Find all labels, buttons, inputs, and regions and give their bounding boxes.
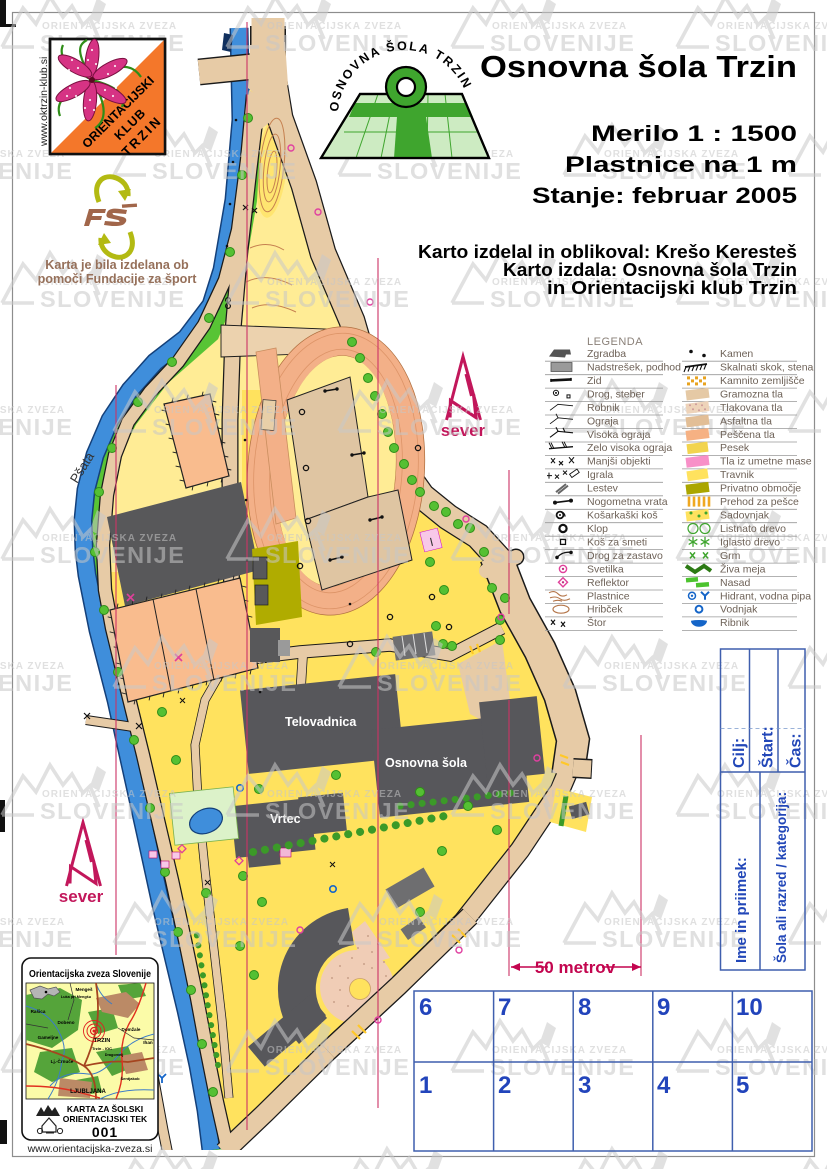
svg-text:Peščena tla: Peščena tla <box>720 429 775 441</box>
svg-text:Ihan: Ihan <box>143 1040 153 1045</box>
svg-text:Orientacijska zveza Slovenije: Orientacijska zveza Slovenije <box>29 968 151 980</box>
svg-text:Skalnati skok, stena: Skalnati skok, stena <box>720 362 814 374</box>
svg-text:www.orientacijska-zveza.si: www.orientacijska-zveza.si <box>27 1143 153 1155</box>
svg-text:Prehod za pešce: Prehod za pešce <box>720 496 799 508</box>
svg-text:pomoči Fundacije za šport: pomoči Fundacije za šport <box>38 272 198 286</box>
svg-text:9: 9 <box>657 994 670 1021</box>
svg-text:Šola ali razred / kategorija:: Šola ali razred / kategorija: <box>774 792 789 963</box>
svg-text:Manjši objekti: Manjši objekti <box>587 456 651 468</box>
svg-text:3: 3 <box>578 1072 591 1099</box>
svg-text:Nadstrešek, podhod: Nadstrešek, podhod <box>587 362 681 374</box>
svg-text:Kamnito zemljišče: Kamnito zemljišče <box>720 375 805 387</box>
svg-text:Reflektor: Reflektor <box>587 577 630 589</box>
svg-text:KARTA ZA ŠOLSKI: KARTA ZA ŠOLSKI <box>67 1103 143 1114</box>
svg-text:Drog za zastavo: Drog za zastavo <box>587 550 663 562</box>
svg-text:Domžale: Domžale <box>122 1027 141 1032</box>
svg-text:Ograja: Ograja <box>587 415 619 427</box>
svg-text:TRZIN: TRZIN <box>94 1038 110 1044</box>
svg-text:Lj.-Črnuče: Lj.-Črnuče <box>51 1058 74 1064</box>
svg-text:Lestev: Lestev <box>587 483 619 495</box>
svg-text:in Orientacijski klub Trzin: in Orientacijski klub Trzin <box>547 278 797 298</box>
svg-text:Tlakovana tla: Tlakovana tla <box>720 402 783 414</box>
svg-text:www.oktrzin-klub.si: www.oktrzin-klub.si <box>38 57 50 147</box>
svg-text:Plastnice na 1 m: Plastnice na 1 m <box>565 152 797 177</box>
svg-text:1: 1 <box>419 1072 432 1099</box>
svg-text:Iglasto drevo: Iglasto drevo <box>720 536 780 548</box>
svg-text:4: 4 <box>657 1072 671 1099</box>
svg-text:Grm: Grm <box>720 550 741 562</box>
svg-text:Travnik: Travnik <box>720 469 755 481</box>
svg-text:Rašica: Rašica <box>31 1009 46 1014</box>
svg-text:Ribnik: Ribnik <box>720 617 750 629</box>
svg-text:Nogometna vrata: Nogometna vrata <box>587 496 668 508</box>
svg-text:8: 8 <box>578 994 591 1021</box>
svg-text:2: 2 <box>498 1072 511 1099</box>
svg-text:LEGENDA: LEGENDA <box>587 336 643 348</box>
svg-text:Telovadnica: Telovadnica <box>285 715 357 729</box>
svg-text:Gameljne: Gameljne <box>38 1035 59 1040</box>
svg-text:Osnovna šola Trzin: Osnovna šola Trzin <box>480 49 797 84</box>
svg-text:Asfaltna tla: Asfaltna tla <box>720 415 772 427</box>
svg-text:Drog, steber: Drog, steber <box>587 388 645 400</box>
svg-text:Štart:: Štart: <box>758 726 777 768</box>
svg-text:Visoka ograja: Visoka ograja <box>587 429 651 441</box>
svg-text:Klop: Klop <box>587 523 608 535</box>
svg-text:Nasad: Nasad <box>720 577 751 589</box>
svg-text:Stanje: februar 2005: Stanje: februar 2005 <box>532 183 797 208</box>
svg-text:Čas:: Čas: <box>786 733 805 768</box>
svg-text:Štor: Štor <box>587 616 607 629</box>
svg-text:Trzin - IOC: Trzin - IOC <box>92 1046 112 1051</box>
svg-text:Svetilka: Svetilka <box>587 563 624 575</box>
svg-text:Šentjakob: Šentjakob <box>120 1076 140 1081</box>
svg-text:Osnovna šola: Osnovna šola <box>385 756 468 770</box>
svg-text:Luka pri Mengšu: Luka pri Mengšu <box>61 995 92 999</box>
svg-text:LJUBLJANA: LJUBLJANA <box>70 1089 106 1095</box>
svg-text:Plastnice: Plastnice <box>587 590 630 602</box>
svg-text:Karto izdelal in oblikoval: Kr: Karto izdelal in oblikoval: Krešo Kerest… <box>418 242 797 262</box>
svg-text:6: 6 <box>419 994 432 1021</box>
svg-text:sever: sever <box>59 887 104 906</box>
svg-text:Gramozna tla: Gramozna tla <box>720 388 783 400</box>
svg-text:Listnato drevo: Listnato drevo <box>720 523 786 535</box>
svg-text:Hidrant, vodna pipa: Hidrant, vodna pipa <box>720 590 811 602</box>
svg-text:Dragomelj: Dragomelj <box>105 1053 124 1057</box>
svg-text:Karta je bila izdelana ob: Karta je bila izdelana ob <box>45 258 189 272</box>
svg-text:7: 7 <box>498 994 511 1021</box>
svg-text:Košarkaški koš: Košarkaški koš <box>587 510 658 522</box>
svg-text:Koš za smeti: Koš za smeti <box>587 536 647 548</box>
svg-text:Sadovnjak: Sadovnjak <box>720 510 770 522</box>
svg-text:Privatno območje: Privatno območje <box>720 483 801 495</box>
svg-text:Vodnjak: Vodnjak <box>720 604 758 616</box>
svg-text:Karto izdala: Osnovna šola Trz: Karto izdala: Osnovna šola Trzin <box>503 260 797 280</box>
svg-text:Mengeš: Mengeš <box>75 987 93 992</box>
svg-text:Zid: Zid <box>587 375 602 387</box>
svg-text:Kamen: Kamen <box>720 348 753 360</box>
svg-text:Zelo visoka ograja: Zelo visoka ograja <box>587 442 672 454</box>
svg-text:Tla iz umetne mase: Tla iz umetne mase <box>720 456 812 468</box>
svg-text:Ime in priimek:: Ime in priimek: <box>733 857 750 963</box>
svg-text:10: 10 <box>736 994 763 1021</box>
svg-text:50 metrov: 50 metrov <box>535 958 616 977</box>
svg-text:Živa meja: Živa meja <box>720 562 766 575</box>
svg-text:Zgradba: Zgradba <box>587 348 626 360</box>
svg-text:5: 5 <box>736 1072 749 1099</box>
svg-text:001: 001 <box>92 1124 118 1140</box>
svg-text:ORIENTACIJSKI TEK: ORIENTACIJSKI TEK <box>63 1114 148 1124</box>
svg-text:Hribček: Hribček <box>587 604 623 616</box>
svg-text:Igrala: Igrala <box>587 469 613 481</box>
svg-text:Pesek: Pesek <box>720 442 750 454</box>
svg-text:Robnik: Robnik <box>587 402 620 414</box>
svg-text:Cilj:: Cilj: <box>731 738 748 768</box>
svg-text:Merilo 1 : 1500: Merilo 1 : 1500 <box>591 121 797 146</box>
svg-text:Dobeno: Dobeno <box>57 1020 74 1025</box>
